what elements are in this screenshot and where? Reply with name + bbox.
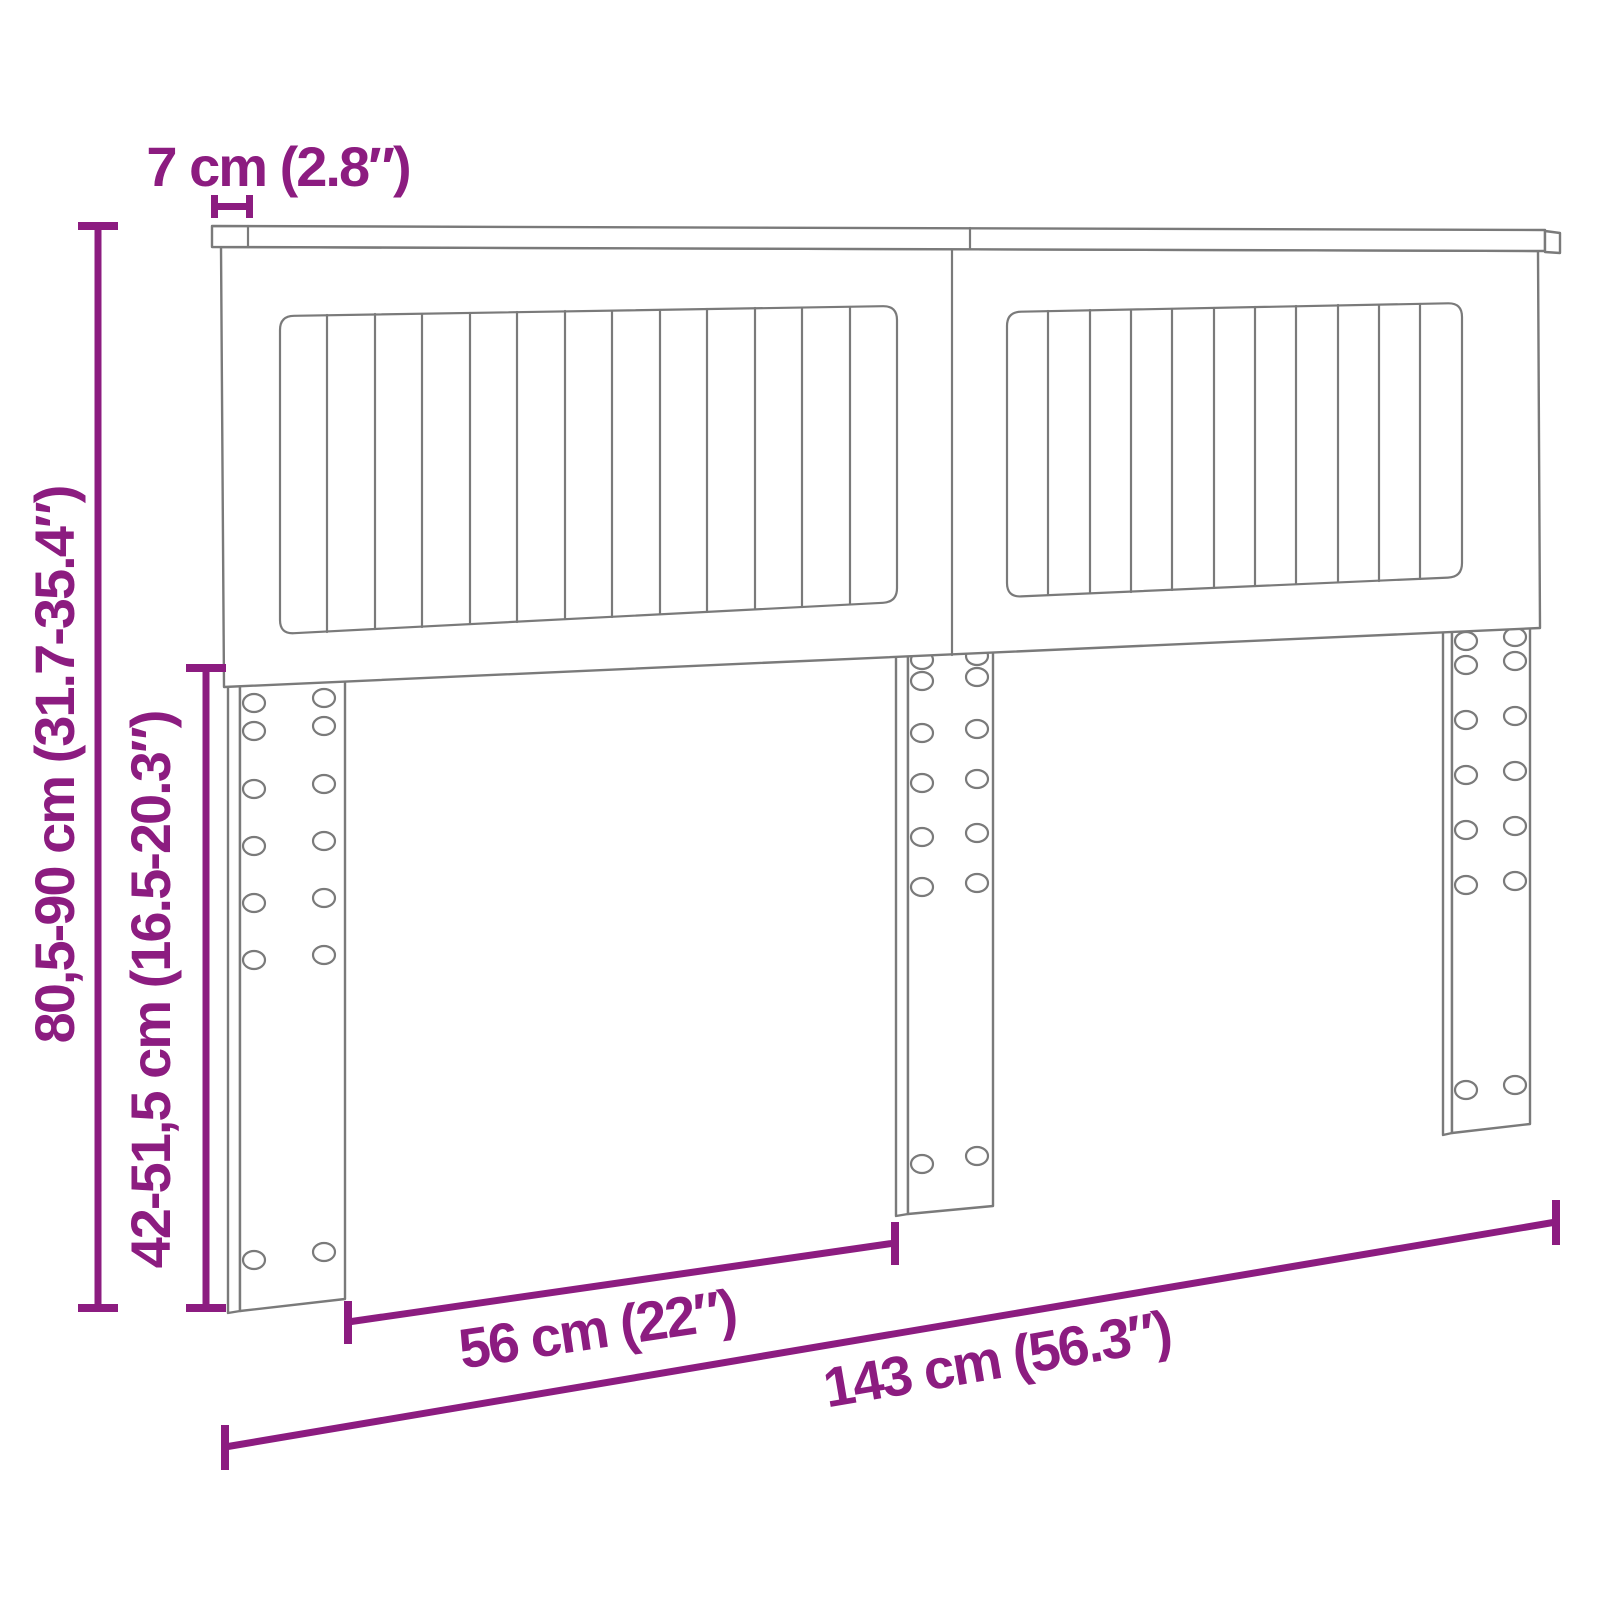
dim-rail-thickness-bracket (215, 195, 250, 218)
dim-overall-height: 80,5-90 cm (31.7-35.4″) (23, 226, 118, 1308)
headboard-drawing (212, 226, 1560, 1313)
headboard-dimension-diagram: 7 cm (2.8″) 80,5-90 cm (31.7-35.4″) 42-5… (0, 0, 1600, 1600)
top-rail-front-face (212, 226, 1545, 251)
middle-leg (896, 640, 993, 1216)
diagram-canvas: 7 cm (2.8″) 80,5-90 cm (31.7-35.4″) 42-5… (0, 0, 1600, 1600)
left-leg (228, 660, 345, 1313)
left-leg-side-face (228, 660, 240, 1313)
top-rail-right-end-cap (1545, 231, 1560, 253)
right-leg-side-face (1443, 620, 1452, 1135)
left-leg-front-face (240, 660, 345, 1311)
dim-rail-thickness-label: 7 cm (2.8″) (146, 135, 409, 198)
middle-leg-side-face (896, 640, 908, 1216)
dim-leg-height-label: 42-51,5 cm (16.5-20.3″) (119, 712, 182, 1269)
dim-leg-height: 42-51,5 cm (16.5-20.3″) (119, 668, 226, 1308)
dim-overall-height-label: 80,5-90 cm (31.7-35.4″) (23, 487, 86, 1044)
dim-leg-spacing: 56 cm (22″) (348, 1222, 895, 1380)
right-leg (1443, 620, 1530, 1135)
dim-rail-thickness: 7 cm (2.8″) (146, 135, 409, 218)
